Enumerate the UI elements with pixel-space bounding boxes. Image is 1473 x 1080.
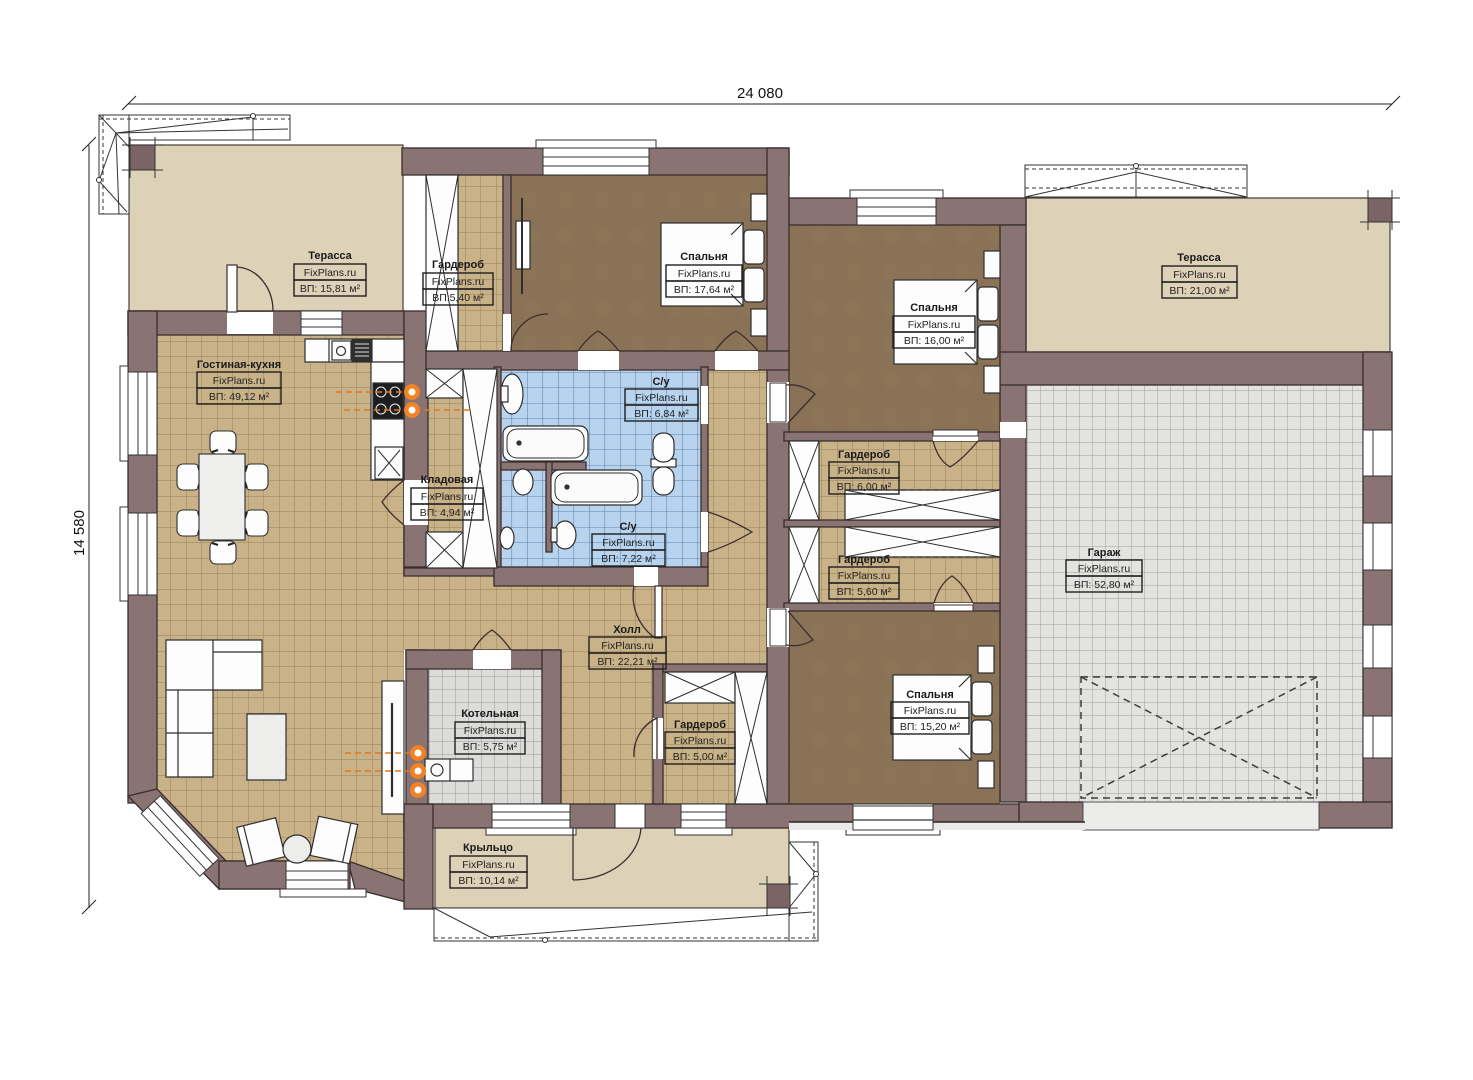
svg-text:ВП: 52,80 м²: ВП: 52,80 м² (1074, 579, 1135, 591)
svg-text:ВП: 49,12 м²: ВП: 49,12 м² (209, 391, 270, 403)
svg-text:ВП: 10,14 м²: ВП: 10,14 м² (458, 875, 519, 887)
svg-text:ВП: 21,00 м²: ВП: 21,00 м² (1169, 285, 1230, 297)
svg-text:FixPlans.ru: FixPlans.ru (602, 537, 655, 549)
svg-text:ВП: 5,00 м²: ВП: 5,00 м² (673, 751, 728, 763)
svg-text:ВП: 6,00 м²: ВП: 6,00 м² (837, 481, 892, 493)
svg-text:FixPlans.ru: FixPlans.ru (462, 859, 515, 871)
svg-text:Гараж: Гараж (1088, 547, 1121, 559)
svg-text:24 080: 24 080 (737, 85, 783, 102)
svg-text:ВП: 16,00 м²: ВП: 16,00 м² (904, 335, 965, 347)
svg-text:FixPlans.ru: FixPlans.ru (213, 375, 266, 387)
svg-text:ВП: 4,94 м²: ВП: 4,94 м² (420, 507, 475, 519)
svg-text:FixPlans.ru: FixPlans.ru (464, 725, 517, 737)
svg-text:14 580: 14 580 (71, 510, 88, 556)
svg-text:FixPlans.ru: FixPlans.ru (674, 735, 727, 747)
svg-text:FixPlans.ru: FixPlans.ru (635, 392, 688, 404)
svg-text:ВП: 22,21 м²: ВП: 22,21 м² (597, 656, 658, 668)
svg-text:ВП:5,40 м²: ВП:5,40 м² (432, 292, 484, 304)
svg-text:Терасса: Терасса (308, 250, 352, 262)
svg-text:ВП: 17,64 м²: ВП: 17,64 м² (674, 284, 735, 296)
svg-text:С/у: С/у (619, 521, 637, 533)
svg-text:Котельная: Котельная (461, 708, 519, 720)
svg-text:FixPlans.ru: FixPlans.ru (601, 640, 654, 652)
svg-text:ВП: 6,84 м²: ВП: 6,84 м² (634, 408, 689, 420)
svg-text:FixPlans.ru: FixPlans.ru (304, 267, 357, 279)
svg-text:FixPlans.ru: FixPlans.ru (904, 705, 957, 717)
svg-text:ВП: 7,22 м²: ВП: 7,22 м² (601, 553, 656, 565)
svg-text:Спальня: Спальня (680, 251, 728, 263)
svg-text:Гардероб: Гардероб (838, 554, 890, 566)
svg-text:Гостиная-кухня: Гостиная-кухня (197, 359, 281, 371)
svg-text:Холл: Холл (613, 624, 641, 636)
svg-text:ВП: 15,20 м²: ВП: 15,20 м² (900, 721, 961, 733)
svg-text:FixPlans.ru: FixPlans.ru (678, 268, 731, 280)
svg-text:FixPlans.ru: FixPlans.ru (838, 570, 891, 582)
svg-text:Крыльцо: Крыльцо (463, 842, 513, 854)
svg-text:Терасса: Терасса (1177, 252, 1221, 264)
svg-text:Гардероб: Гардероб (838, 449, 890, 461)
svg-text:С/у: С/у (652, 376, 670, 388)
svg-text:ВП: 5,75 м²: ВП: 5,75 м² (463, 741, 518, 753)
svg-text:FixPlans.ru: FixPlans.ru (1173, 269, 1226, 281)
svg-text:Спальня: Спальня (910, 302, 958, 314)
svg-text:Спальня: Спальня (906, 689, 954, 701)
svg-text:ВП: 5,60 м²: ВП: 5,60 м² (837, 586, 892, 598)
svg-text:FixPlans.ru: FixPlans.ru (1078, 563, 1131, 575)
svg-text:FixPlans.ru: FixPlans.ru (908, 319, 961, 331)
svg-text:Кладовая: Кладовая (421, 474, 474, 486)
svg-text:Гардероб: Гардероб (432, 259, 484, 271)
svg-text:FixPlans.ru: FixPlans.ru (421, 491, 474, 503)
svg-text:Гардероб: Гардероб (674, 719, 726, 731)
svg-text:ВП: 15,81 м²: ВП: 15,81 м² (300, 283, 361, 295)
svg-text:FixPlans.ru: FixPlans.ru (838, 465, 891, 477)
svg-text:FixPlans.ru: FixPlans.ru (432, 276, 485, 288)
